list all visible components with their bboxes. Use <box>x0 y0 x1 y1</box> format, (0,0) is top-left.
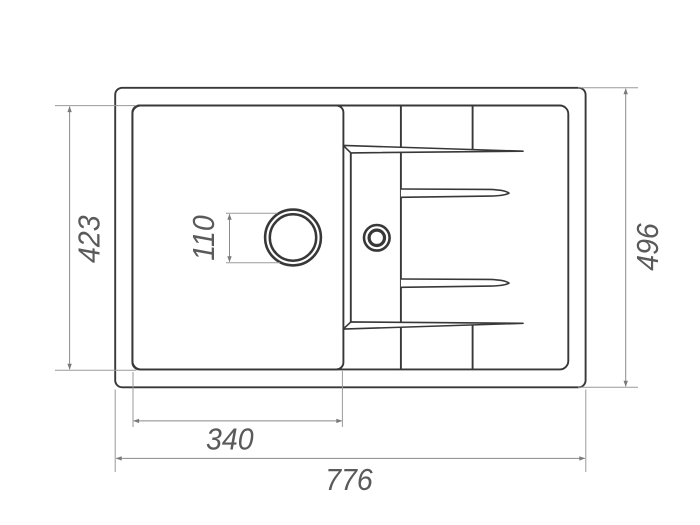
svg-text:776: 776 <box>325 463 373 497</box>
svg-text:496: 496 <box>631 223 665 271</box>
svg-text:423: 423 <box>73 215 107 263</box>
svg-text:340: 340 <box>206 422 254 456</box>
svg-text:110: 110 <box>187 215 221 261</box>
